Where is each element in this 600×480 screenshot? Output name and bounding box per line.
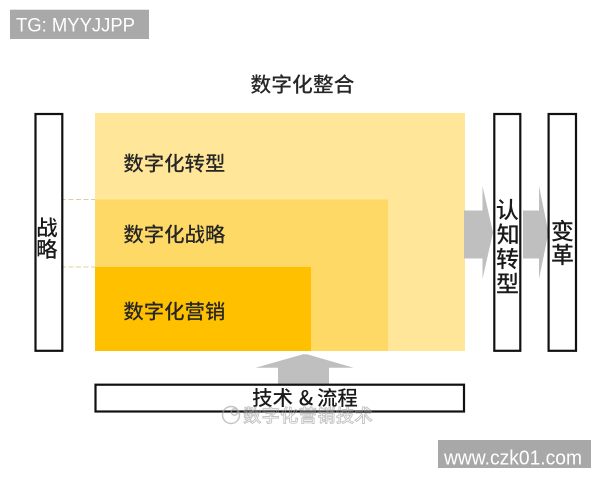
svg-text:www.czk01.com: www.czk01.com bbox=[443, 446, 582, 469]
svg-text:TG: MYYJJPP: TG: MYYJJPP bbox=[16, 16, 135, 37]
